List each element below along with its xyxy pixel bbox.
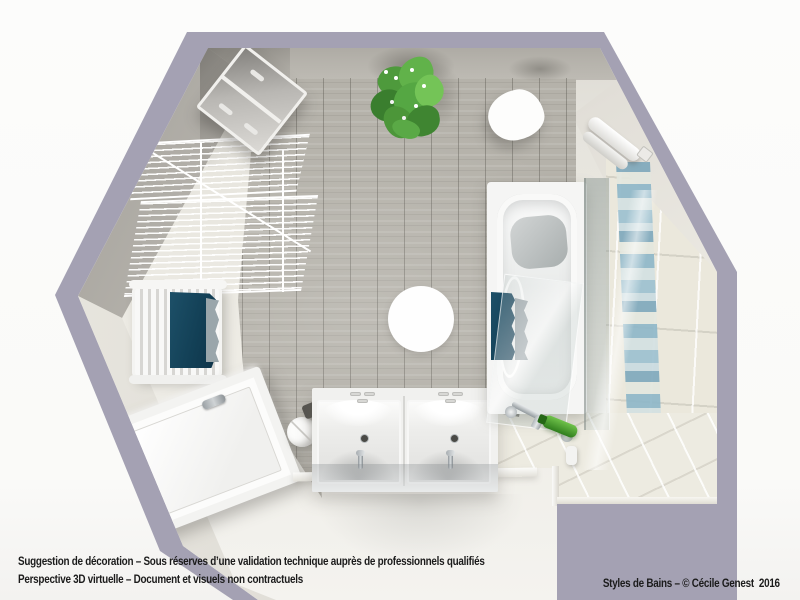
bathroom-3d-render: Suggestion de décoration – Sous réserves… [0, 0, 800, 600]
bath-cushion [509, 214, 569, 271]
drawer-handle [350, 392, 361, 396]
credit-text: Styles de Bains – © Cécile Genest 2016 [603, 578, 780, 590]
potted-plant [370, 56, 450, 140]
floor-reflection [315, 494, 525, 564]
shelving-post [200, 142, 202, 292]
round-rug [388, 286, 454, 352]
drawer-handle [445, 399, 456, 403]
double-sink-vanity [312, 388, 498, 492]
drawer-handle [452, 392, 463, 396]
glass-panel [584, 178, 610, 430]
vanity-reflection [312, 464, 498, 492]
drawer-handle [438, 392, 449, 396]
bathtub [487, 182, 587, 414]
platform-front-edge [557, 497, 717, 505]
shelving-post [282, 150, 284, 292]
sink-drain [360, 434, 369, 443]
shower-drain [201, 393, 227, 410]
sink-drain [450, 434, 459, 443]
drawer-handle [357, 399, 368, 403]
plant-flowers [384, 70, 388, 74]
disclaimer-line-2: Perspective 3D virtuelle – Document et v… [18, 574, 303, 586]
disclaimer-line-1: Suggestion de décoration – Sous réserves… [18, 556, 485, 568]
faucet-handle [505, 406, 517, 418]
soap-bottle [566, 446, 577, 465]
pebble-shadow-on-wall [508, 56, 572, 82]
drawer-handle [364, 392, 375, 396]
